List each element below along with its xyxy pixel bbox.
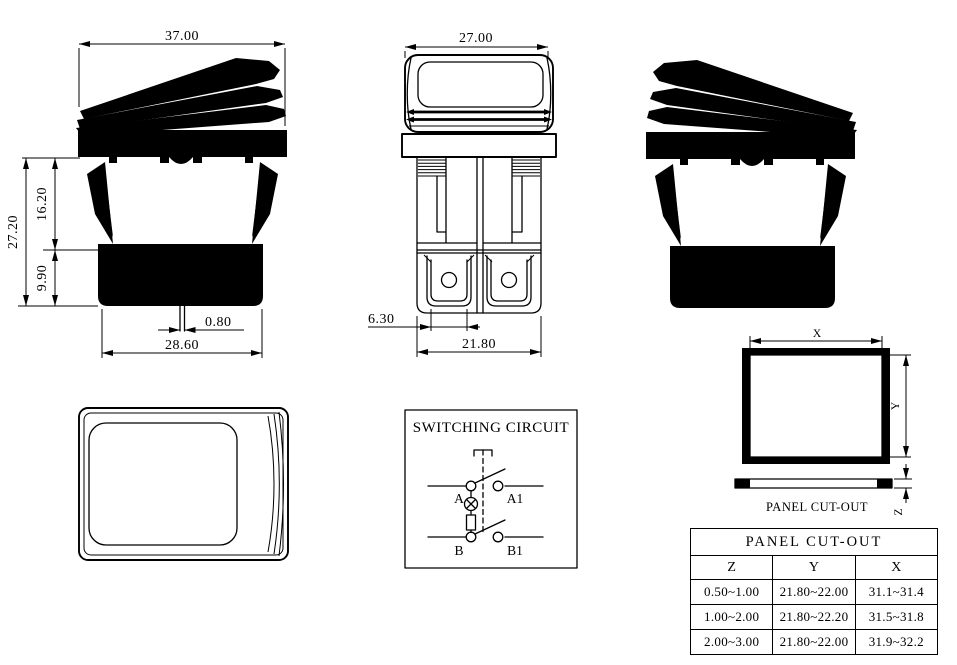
cutout-dim-z: Z [893, 508, 905, 515]
cutout-dim-x: X [813, 328, 822, 340]
dim-lower-height-9-90: 9.90 [35, 265, 50, 292]
terminal-label-b1: B1 [507, 543, 523, 558]
contact-b1 [493, 532, 503, 542]
dim-width-27: 27.00 [459, 31, 493, 46]
dim-base-width-28-60: 28.60 [165, 338, 199, 353]
contact-b [466, 532, 476, 542]
switch-side-profile-mirrored [646, 60, 857, 308]
dim-body-width-21-80: 21.80 [462, 337, 496, 352]
dim-upper-height-16-20: 16.20 [35, 187, 50, 221]
cell-z-3: 2.00~3.00 [691, 630, 773, 655]
dim-width-37: 37.00 [165, 29, 199, 44]
table-header-y: Y [773, 556, 855, 580]
side-view-right [646, 60, 857, 308]
panel-cutout-table: PANEL CUT-OUT Z Y X 0.50~1.00 21.80~22.0… [690, 528, 938, 650]
cell-y-3: 21.80~22.00 [773, 630, 855, 655]
table-title: PANEL CUT-OUT [691, 529, 938, 556]
table-row: 2.00~3.00 21.80~22.00 31.9~32.2 [691, 630, 938, 655]
circuit-title: SWITCHING CIRCUIT [413, 420, 569, 436]
top-view [79, 408, 288, 560]
rocker-switch-technical-drawing: 37.00 27.20 16.20 9.90 0.80 28.60 [0, 0, 957, 665]
terminal-label-a: A [454, 491, 464, 506]
switching-circuit: SWITCHING CIRCUIT A A1 B B1 [405, 410, 577, 568]
switch-side-profile [76, 58, 287, 306]
table-row: 0.50~1.00 21.80~22.00 31.1~31.4 [691, 580, 938, 605]
long-pin [180, 303, 185, 331]
contact-a1 [493, 481, 503, 491]
cutout-opening [750, 355, 882, 457]
table-header-z: Z [691, 556, 773, 580]
cell-z-2: 1.00~2.00 [691, 605, 773, 630]
table-header-x: X [855, 556, 937, 580]
table-row: 1.00~2.00 21.80~22.20 31.5~31.8 [691, 605, 938, 630]
cell-y-2: 21.80~22.20 [773, 605, 855, 630]
panel-section [735, 479, 892, 488]
dim-pin-width-0-80: 0.80 [205, 315, 232, 330]
cell-y-1: 21.80~22.00 [773, 580, 855, 605]
switch-blade-top [475, 469, 505, 483]
contact-a [466, 481, 476, 491]
terminal-label-a1: A1 [507, 491, 524, 506]
cutout-dim-y: Y [890, 401, 902, 410]
rocker-top-face [89, 423, 237, 545]
panel-cutout-caption: PANEL CUT-OUT [766, 500, 868, 514]
terminal-label-b: B [454, 543, 463, 558]
panel-hatch [742, 348, 890, 464]
cell-z-1: 0.50~1.00 [691, 580, 773, 605]
cell-x-2: 31.5~31.8 [855, 605, 937, 630]
front-view: 27.00 6.30 21.80 [368, 31, 556, 357]
resistor-icon [467, 515, 476, 530]
side-view-left: 37.00 27.20 16.20 9.90 0.80 28.60 [6, 29, 287, 358]
cell-x-1: 31.1~31.4 [855, 580, 937, 605]
panel-cutout-drawing: X Y Z PANEL CUT-OUT [735, 328, 912, 516]
cell-x-3: 31.9~32.2 [855, 630, 937, 655]
dim-total-height-27-20: 27.20 [6, 215, 21, 249]
dim-terminal-width-6-30: 6.30 [368, 312, 395, 327]
switch-blade-bottom [475, 520, 505, 534]
